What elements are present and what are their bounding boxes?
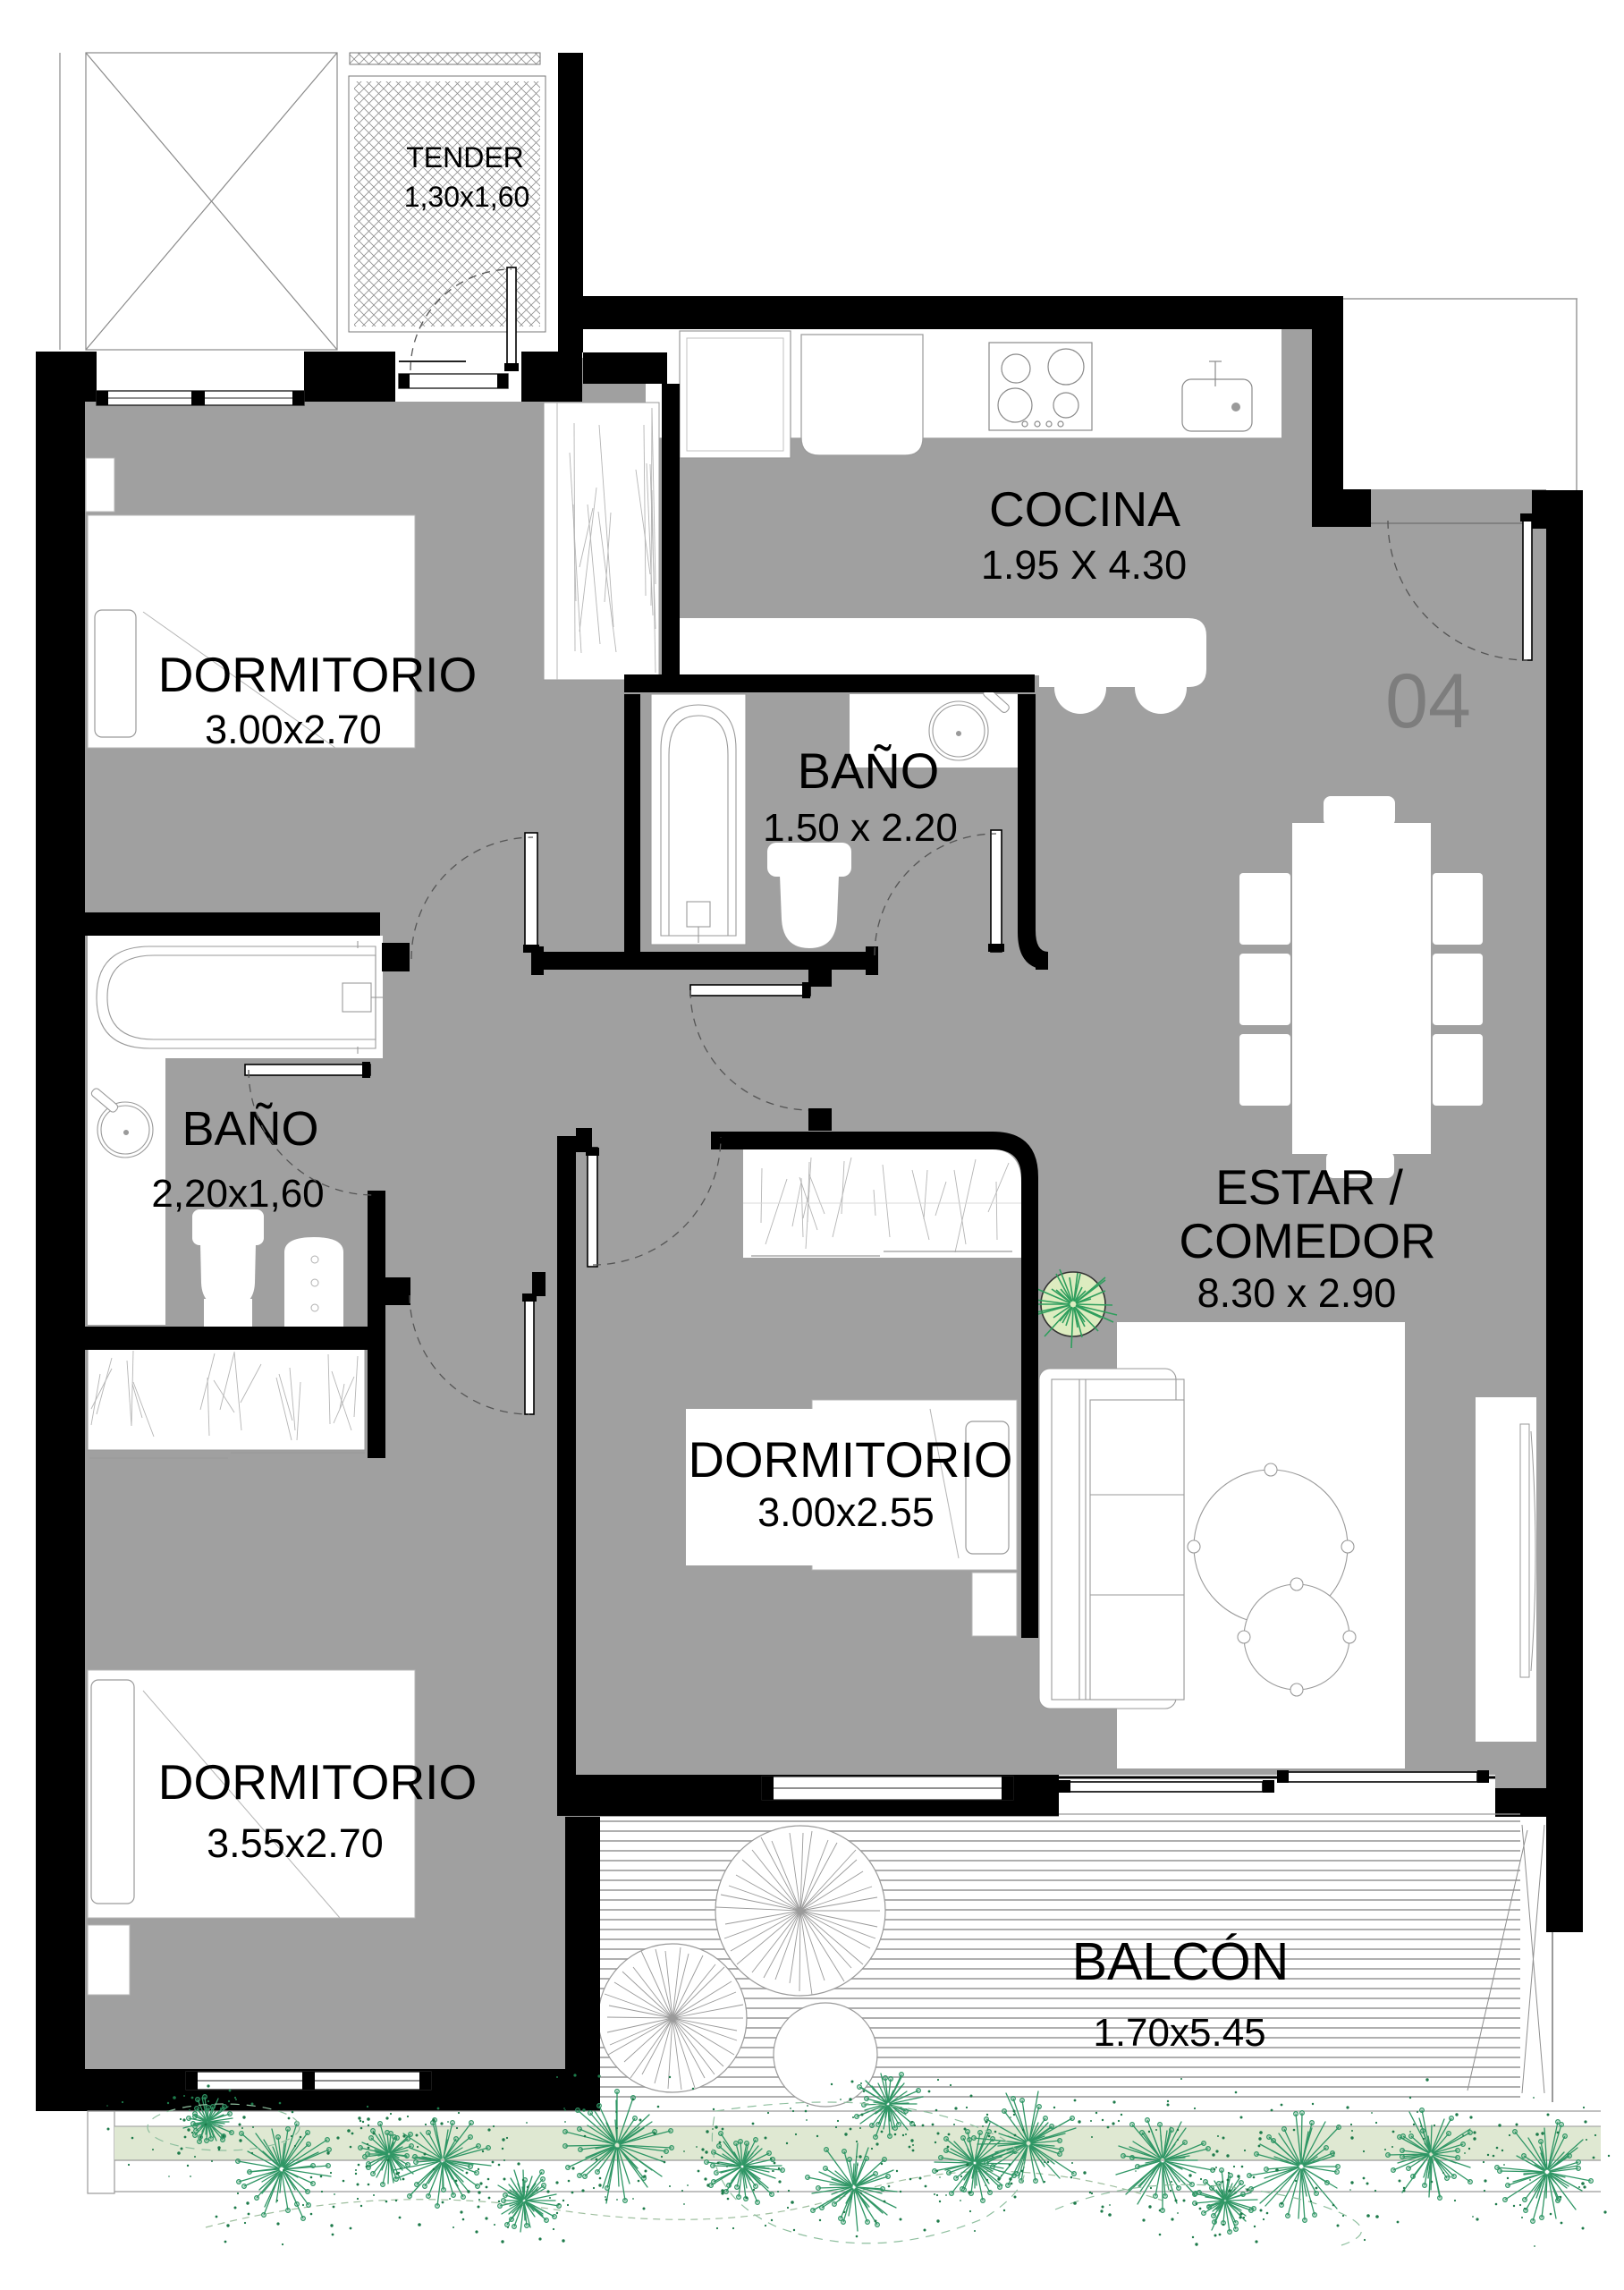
svg-text:BALCÓN: BALCÓN bbox=[1072, 1932, 1290, 1991]
svg-text:DORMITORIO: DORMITORIO bbox=[158, 647, 477, 702]
svg-text:ESTAR /: ESTAR / bbox=[1215, 1159, 1404, 1215]
svg-text:1.70x5.45: 1.70x5.45 bbox=[1093, 2011, 1265, 2055]
svg-text:1.95 X 4.30: 1.95 X 4.30 bbox=[981, 542, 1187, 588]
svg-text:2,20x1,60: 2,20x1,60 bbox=[151, 1172, 324, 1216]
svg-text:DORMITORIO: DORMITORIO bbox=[158, 1754, 477, 1810]
svg-text:DORMITORIO: DORMITORIO bbox=[689, 1431, 1013, 1488]
svg-text:BAÑO: BAÑO bbox=[798, 742, 940, 799]
svg-text:8.30 x 2.90: 8.30 x 2.90 bbox=[1197, 1270, 1397, 1316]
svg-text:3.00x2.55: 3.00x2.55 bbox=[757, 1489, 935, 1535]
svg-text:1,30x1,60: 1,30x1,60 bbox=[404, 181, 530, 213]
svg-text:3.00x2.70: 3.00x2.70 bbox=[205, 707, 382, 752]
svg-text:COMEDOR: COMEDOR bbox=[1179, 1213, 1435, 1268]
svg-text:BAÑO: BAÑO bbox=[182, 1102, 318, 1156]
svg-text:1.50 x 2.20: 1.50 x 2.20 bbox=[763, 806, 958, 850]
svg-text:COCINA: COCINA bbox=[989, 481, 1180, 537]
svg-text:04: 04 bbox=[1385, 658, 1471, 744]
svg-text:TENDER: TENDER bbox=[406, 141, 524, 174]
svg-text:3.55x2.70: 3.55x2.70 bbox=[207, 1820, 384, 1866]
